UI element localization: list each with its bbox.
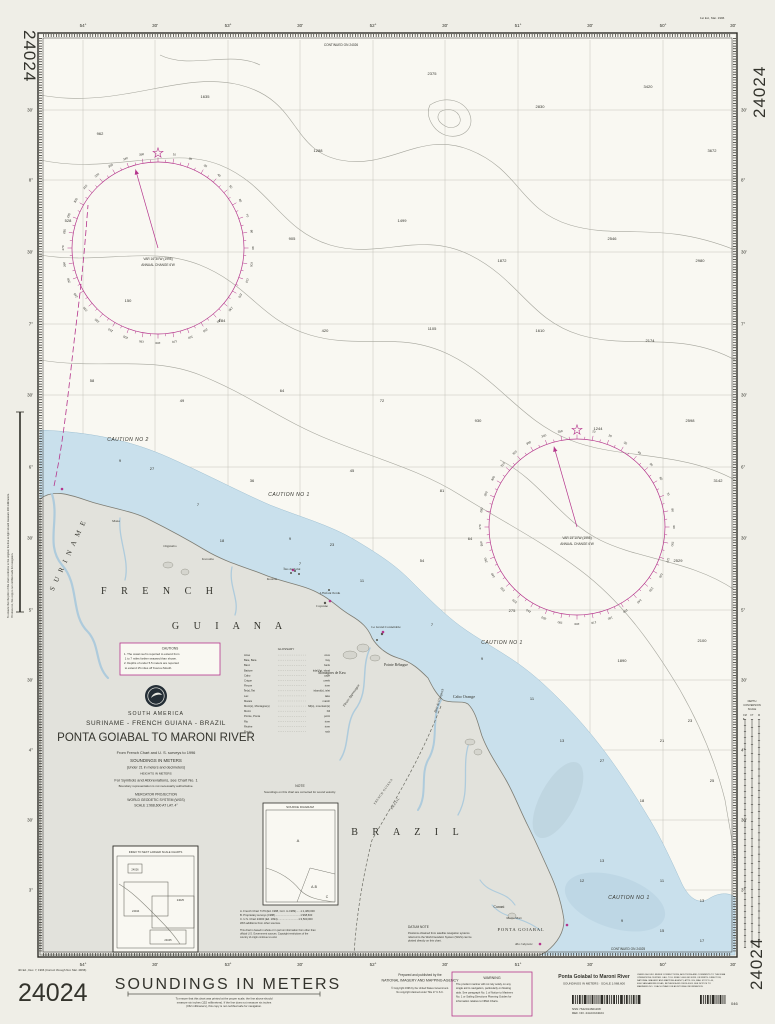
glossary-definition: hill: [327, 709, 331, 713]
glossary-definition: lake: [325, 694, 330, 698]
lat-label: 30': [741, 818, 747, 823]
datum-note-title: DATUM NOTE: [408, 925, 429, 929]
bottom-chart-subtitle: SOUNDINGS IN METERS · SCALE 1:968,600: [563, 982, 625, 986]
lon-label: 52°: [370, 23, 377, 28]
lat-label: 7°: [741, 322, 746, 327]
glossary-definition: river: [325, 719, 330, 723]
stock-number: 046: [731, 1001, 738, 1006]
copyright-line2: No copyright claimed under Title 17 U.S.…: [396, 991, 444, 994]
depth-scale-col3: M: [758, 714, 760, 717]
sounding-value: 27: [150, 466, 155, 471]
sounding-value: 15: [660, 928, 665, 933]
title-source-line: From French Chart and U. S. surveys to 1…: [117, 750, 196, 755]
lat-label: 6°: [29, 465, 34, 470]
lat-label: 8°: [741, 178, 746, 183]
glossary-term: Batture: [244, 668, 253, 672]
glossary-definition: river: [325, 684, 330, 688]
glossary-title: GLOSSARY: [278, 647, 294, 651]
sounding-value: 64: [280, 388, 285, 393]
left-margin-note-line1: To ensure that the print of this chart c…: [6, 493, 10, 618]
sounding-value: 1635: [201, 94, 211, 99]
sounding-value: 2375: [428, 71, 438, 76]
title-scale-line: SCALE 1:968,600 AT LAT. 4°: [134, 804, 178, 808]
glossary-term: Mont(s), Montagne(s): [244, 704, 270, 708]
sounding-value: 18: [640, 798, 645, 803]
nautical-chart-page: 1020304050607080901001101201301401501601…: [0, 0, 775, 1024]
sounding-value: 13: [700, 898, 705, 903]
place-label: Îles du Salut: [284, 566, 301, 571]
lon-label: 30': [442, 23, 448, 28]
glossary-definition: bank: [324, 663, 330, 667]
depth-scale-title3: SCALE: [748, 707, 757, 711]
sounding-value: 962: [97, 131, 104, 136]
publisher-line1: Prepared and published by the: [398, 973, 442, 977]
agency-seal: [145, 685, 167, 707]
glossary-term: Pointe, Ponta: [244, 714, 261, 718]
index-label-c: 24025: [177, 898, 185, 902]
place-label: Morro Mari: [506, 916, 521, 920]
sounding-value: 1499: [398, 218, 408, 223]
sounding-value: 36: [250, 478, 255, 483]
publisher-line2: NATIONAL IMAGERY AND MAPPING AGENCY: [382, 979, 460, 983]
lon-label: 53°: [225, 23, 232, 28]
glossary-term: Morro: [244, 709, 252, 713]
index-label-d: 24045: [164, 938, 172, 942]
lon-label: 51°: [515, 23, 522, 28]
glossary-term: Fleuve: [244, 684, 253, 688]
sounding-value: 49: [180, 398, 185, 403]
place-label: Cabo Orange: [453, 694, 475, 699]
lat-label: 30': [27, 393, 33, 398]
source-region-a: A: [297, 838, 300, 843]
index-label-b: 24044: [132, 909, 140, 913]
sounding-value: 13: [560, 738, 565, 743]
glossary-term: Île(s), Îlet: [243, 689, 255, 693]
sounding-value: 27: [600, 758, 605, 763]
lat-label: 30': [27, 536, 33, 541]
sounding-value: 930: [475, 418, 482, 423]
depth-scale-col1: FM: [743, 714, 746, 717]
title-symbols-line: For Symbols and Abbreviations, see Chart…: [114, 778, 197, 783]
place-label: Cayenne: [316, 604, 328, 608]
sounding-value: 45: [350, 468, 355, 473]
caution-label: CAUTION NO 1: [268, 492, 310, 498]
chart-title: PONTA GOIABAL TO MARONI RIVER: [57, 732, 255, 744]
sounding-value: 1105: [428, 326, 437, 331]
title-soundings-sub: (Under 21 in meters and decimeters): [127, 766, 186, 770]
glossary-definition: rock: [325, 730, 331, 734]
left-margin-note-line2: If it does not, this copy is not certifi…: [10, 553, 14, 618]
title-heights: HEIGHTS IN METERS: [140, 772, 171, 776]
lon-label: 30': [152, 23, 158, 28]
rose-degree-label: 270: [61, 245, 65, 250]
lon-label: 52°: [370, 962, 377, 967]
sounding-value: 25: [710, 778, 715, 783]
lat-label: 5°: [741, 608, 746, 613]
lat-label: 8°: [29, 178, 34, 183]
sounding-value: 13: [600, 858, 605, 863]
bottom-chart-title: Ponta Goiabal to Maroni River: [558, 974, 629, 980]
lat-label: 30': [741, 393, 747, 398]
lon-label: 53°: [225, 962, 232, 967]
place-label: Organabo: [163, 544, 177, 548]
ref-no-text: REF. NO. 24ACO24024: [572, 1011, 604, 1015]
sounding-value: 150: [125, 298, 132, 303]
sounding-value: 420: [322, 328, 329, 333]
sounding-value: 2598: [686, 418, 696, 423]
sounding-value: 1288: [314, 148, 324, 153]
title-boundary-line: Boundary representation is not necessari…: [119, 784, 194, 788]
copyright-line1: © Copyright 1996 by the United States Go…: [391, 987, 449, 990]
sounding-value: 17: [700, 938, 705, 943]
place-label: Montagnes de Kaw: [318, 671, 346, 675]
glossary-term: Roche: [244, 730, 252, 734]
sounding-value: 528: [65, 218, 72, 223]
variation-note: ANNUAL CHANGE 6'W: [141, 263, 175, 267]
sounding-value: 81: [440, 488, 445, 493]
rose-degree-label: 270: [478, 524, 482, 529]
cautions-text: 1. The coast reef is reported to extend …: [124, 652, 180, 670]
place-label: Cunani: [494, 905, 505, 909]
place-label: F R E N C H: [101, 586, 219, 597]
glossary-definition: island(s), islet: [314, 689, 331, 693]
rose-degree-label: 90: [672, 525, 676, 529]
lon-label: 54°: [80, 962, 87, 967]
place-label: L'Enfant Perdu: [320, 591, 341, 595]
caution-label: CAUTION NO 1: [481, 640, 523, 646]
index-label-a: 24026: [131, 868, 139, 872]
glossary-term: Marais: [244, 699, 253, 703]
sounding-value: 72: [380, 398, 385, 403]
lat-label: 4°: [29, 748, 34, 753]
sounding-value: 58: [90, 378, 95, 383]
glossary-term: Rio: [244, 719, 249, 723]
sounding-value: 21: [660, 738, 665, 743]
glossary-definition: marsh: [323, 699, 331, 703]
sounding-value: 64: [468, 536, 473, 541]
glossary-definition: point: [324, 714, 330, 718]
edition-note: 4th Ed., Dec. 7, 1996 (Correct through N…: [18, 968, 86, 972]
cautions-box: CAUTIONS 1. The coast reef is reported t…: [120, 643, 220, 675]
note-title: NOTE: [295, 784, 305, 788]
place-label: Rio Calçoene: [514, 942, 533, 946]
title-region: SOUTH AMERICA: [128, 711, 184, 717]
sounding-value: 275: [509, 608, 516, 613]
sounding-value: 2174: [646, 338, 656, 343]
glossary-term: Rivière: [244, 724, 253, 728]
lat-label: 6°: [741, 465, 746, 470]
caution-label: CAUTION NO 2: [107, 437, 149, 443]
chart-canvas: 1020304050607080901001101201301401501601…: [0, 0, 775, 1024]
place-label: Kourou: [267, 577, 278, 581]
sounding-value: 2980: [696, 258, 706, 263]
sounding-value: 3142: [714, 478, 724, 483]
lat-label: 7°: [29, 322, 34, 327]
lon-label: 30': [297, 23, 303, 28]
sounding-value: 184: [219, 318, 226, 323]
sounding-value: 2100: [698, 638, 708, 643]
lon-label: 30': [587, 23, 593, 28]
rose-degree-label: 180: [155, 341, 160, 345]
lon-label: 30': [442, 962, 448, 967]
glossary-term: Baie, Baía: [244, 658, 257, 662]
lon-label: 51°: [515, 962, 522, 967]
lat-label: 30': [741, 678, 747, 683]
sounding-value: 2529: [674, 558, 684, 563]
scale-verify-note: To ensure that this chart was printed at…: [176, 997, 273, 1009]
lat-label: 30': [741, 108, 747, 113]
glossary-term: Cabo: [244, 673, 251, 677]
place-label: Pointe Béhague: [384, 663, 408, 667]
lon-label: 30': [152, 962, 158, 967]
place-label: Le Grand Connétable: [371, 625, 401, 629]
title-projection: MERCATOR PROJECTION: [135, 793, 177, 797]
glossary-definition: river: [325, 724, 330, 728]
caution-label: CAUTION NO 1: [608, 895, 650, 901]
lat-label: 30': [741, 250, 747, 255]
chart-number-top-left: 24024: [20, 30, 39, 82]
index-box: INDEX TO NEXT LARGER SCALE CHARTS 24026 …: [113, 846, 198, 952]
lon-label: 30': [730, 962, 736, 967]
glossary-term: Banc: [244, 663, 251, 667]
sounding-value: 1244: [594, 426, 604, 431]
warning-title: WARNING: [483, 976, 500, 980]
depth-scale-title2: CONVERSION: [743, 703, 761, 707]
note-text: Soundings on this chart are corrected fo…: [264, 790, 336, 794]
cautions-title: CAUTIONS: [162, 647, 178, 651]
glossary-definition: bay: [326, 658, 331, 662]
lon-label: 54°: [80, 23, 87, 28]
sounding-value: 18: [220, 538, 225, 543]
variation-note: VAR 16°30'W (1995): [143, 257, 172, 261]
place-label: PONTA GOIABAL: [498, 927, 545, 932]
sounding-value: 1872: [498, 258, 508, 263]
lat-label: 30': [27, 108, 33, 113]
lat-label: 30': [27, 678, 33, 683]
lat-label: 30': [27, 818, 33, 823]
rose-degree-label: 90: [251, 246, 255, 250]
sounding-value: 2546: [608, 236, 618, 241]
place-label: Iracoubo: [202, 557, 214, 561]
chart-number-bottom-left: 24024: [18, 979, 88, 1007]
lon-label: 50°: [660, 962, 667, 967]
depth-scale-title1: DEPTH: [748, 699, 757, 703]
chart-number-bottom-right: 24024: [747, 938, 766, 990]
lon-label: 30': [297, 962, 303, 967]
lat-label: 5°: [29, 608, 34, 613]
glossary-definition: hill(s), mountain(s): [308, 704, 330, 708]
lat-label: 3°: [29, 888, 34, 893]
glossary-definition: cove: [324, 654, 330, 657]
source-diagram-title: SOURCE DIAGRAM: [286, 805, 314, 809]
glossary-term: Anse: [244, 653, 251, 657]
sounding-value: 23: [330, 542, 335, 547]
title-datum: WORLD GEODETIC SYSTEM (WGS): [127, 798, 184, 802]
sounding-value: 54: [420, 558, 425, 563]
sounding-value: 1890: [618, 658, 628, 663]
sounding-value: 2830: [536, 104, 546, 109]
rose-degree-label: 180: [574, 622, 579, 626]
margin-note-top-right: 1st Ed., Mar. 1996: [700, 16, 725, 20]
continuation-top: CONTINUED ON 24026: [324, 43, 359, 47]
place-label: B R A Z I L: [351, 827, 465, 838]
place-label: G U I A N A: [172, 621, 288, 632]
source-region-ab: A-B: [311, 885, 317, 889]
chart-number-top-right: 24024: [750, 66, 769, 118]
glossary-term: Lac: [244, 694, 249, 698]
sounding-value: 3420: [644, 84, 654, 89]
sounding-value: 3672: [708, 148, 718, 153]
continuation-bottom: CONTINUED ON 24025: [611, 947, 646, 951]
sounding-value: 12: [580, 878, 585, 883]
variation-note: ANNUAL CHANGE 6'W: [560, 542, 594, 546]
variation-note: VAR 15°10'W (1995): [562, 536, 591, 540]
sounding-value: 1610: [536, 328, 546, 333]
place-label: Mana: [112, 519, 120, 523]
lat-label: 30': [741, 536, 747, 541]
title-soundings: SOUNDINGS IN METERS: [130, 758, 182, 763]
lon-label: 30': [730, 23, 736, 28]
soundings-banner: SOUNDINGS IN METERS: [115, 976, 341, 993]
lon-label: 50°: [660, 23, 667, 28]
title-countries: SURINAME - FRENCH GUIANA - BRAZIL: [86, 720, 226, 727]
lat-label: 30': [27, 250, 33, 255]
sounding-value: 23: [688, 718, 693, 723]
lon-label: 30': [587, 962, 593, 967]
sounding-value: 905: [289, 236, 296, 241]
index-box-title: INDEX TO NEXT LARGER SCALE CHARTS: [129, 850, 183, 854]
glossary-term: Crique: [244, 679, 252, 683]
glossary-definition: creek: [323, 679, 330, 683]
